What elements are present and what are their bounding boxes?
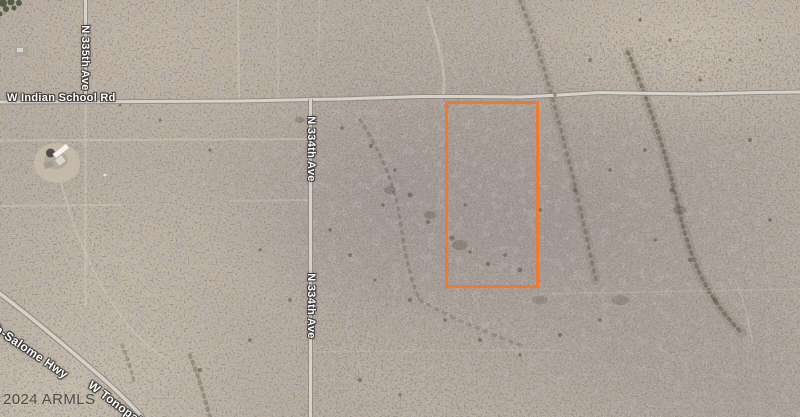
satellite-map[interactable]: W Indian School Rd N 335th Ave N 334th A… [0, 0, 800, 417]
outbuilding [15, 47, 28, 56]
road-label-indian-school: W Indian School Rd [7, 92, 116, 104]
map-overlay [0, 0, 800, 417]
map-attribution: 2024 ARMLS [3, 391, 95, 408]
road-label-n334th-ave-upper: N 334th Ave [305, 116, 317, 181]
road-label-n334th-ave-lower: N 334th Ave [305, 273, 317, 338]
road-label-n335th-ave: N 335th Ave [79, 25, 91, 90]
